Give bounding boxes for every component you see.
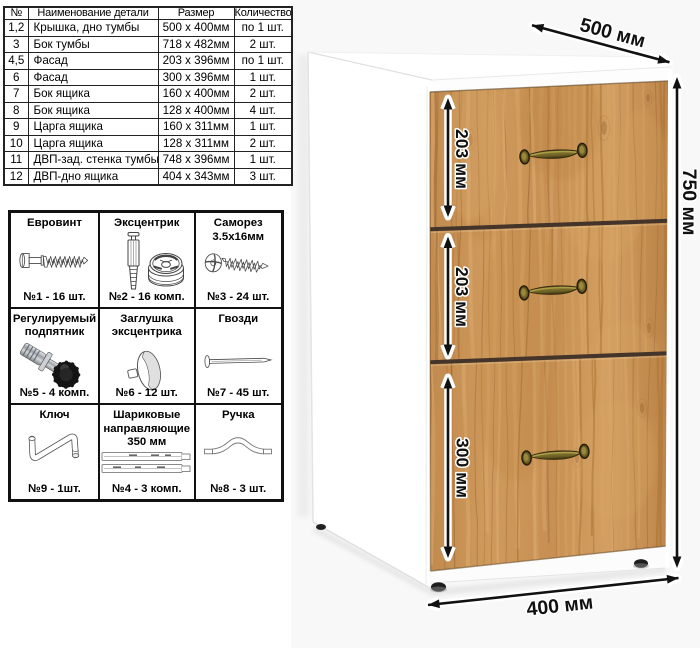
svg-text:203 мм: 203 мм	[452, 267, 472, 327]
svg-text:203 мм: 203 мм	[452, 129, 472, 189]
svg-text:750 мм: 750 мм	[678, 169, 700, 236]
svg-text:300 мм: 300 мм	[453, 438, 473, 498]
